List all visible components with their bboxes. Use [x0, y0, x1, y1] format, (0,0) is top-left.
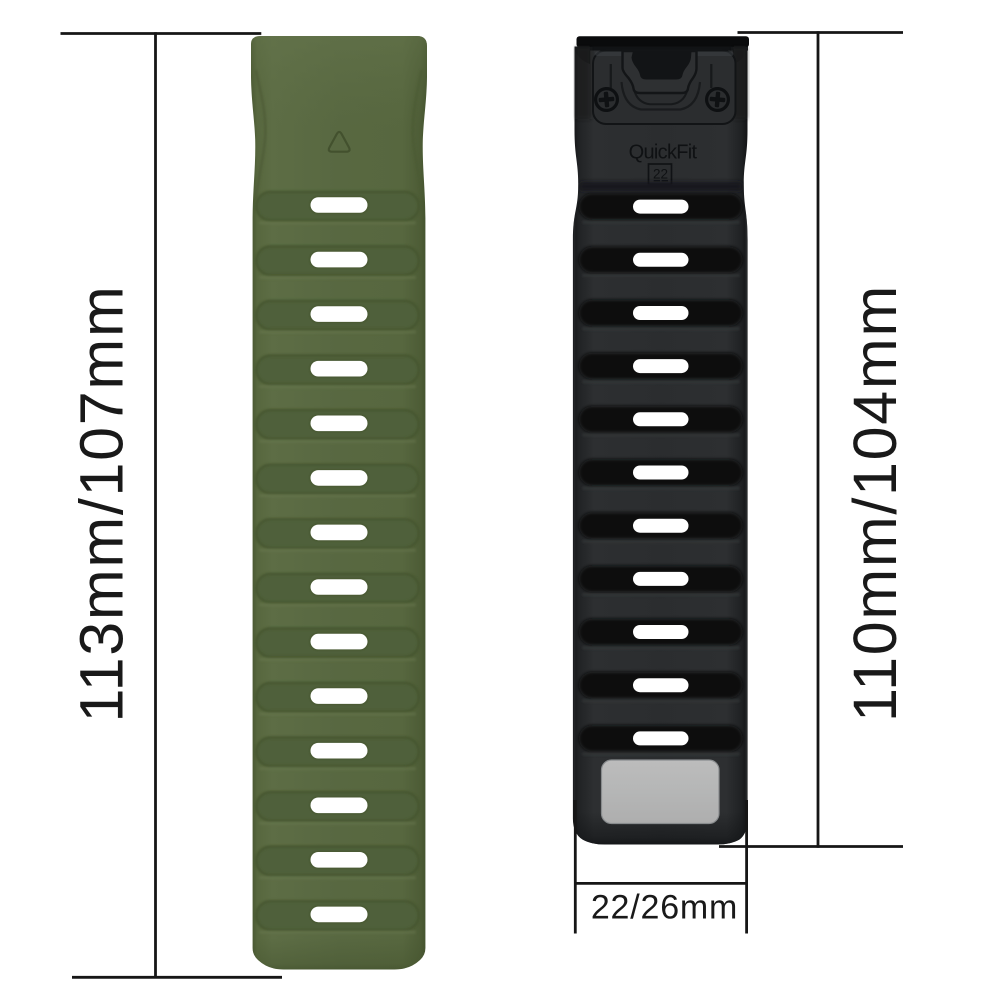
svg-text:110mm/104mm: 110mm/104mm — [841, 284, 909, 722]
svg-text:113mm/107mm: 113mm/107mm — [68, 285, 136, 723]
svg-text:22/26mm: 22/26mm — [591, 889, 738, 927]
svg-text:22: 22 — [653, 167, 668, 182]
svg-text:QuickFit: QuickFit — [629, 142, 698, 164]
